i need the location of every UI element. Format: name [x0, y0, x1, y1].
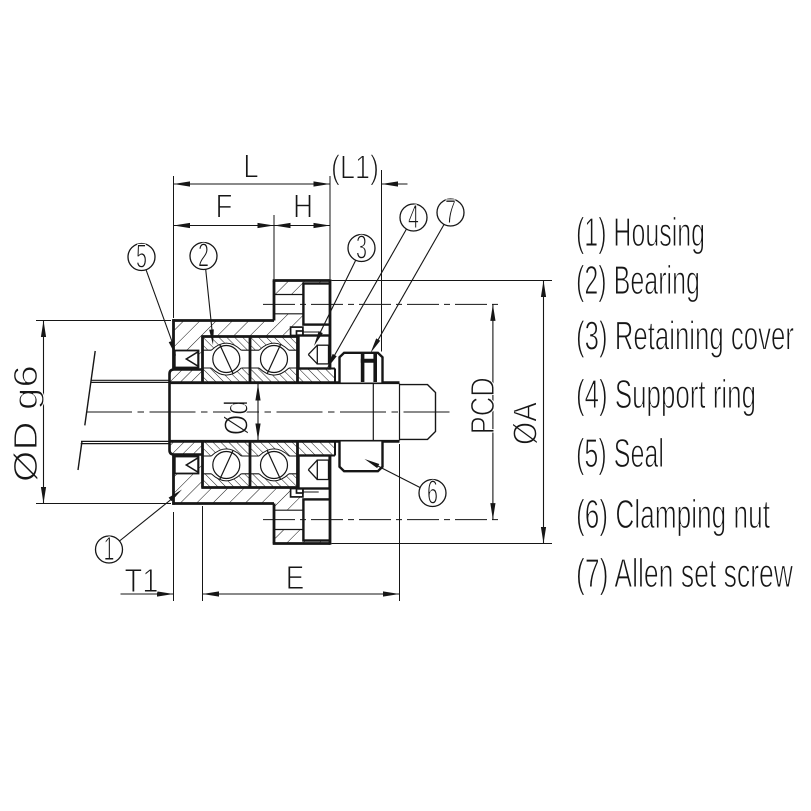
svg-text:2: 2 — [198, 238, 209, 275]
svg-text:5: 5 — [136, 239, 147, 276]
svg-text:H: H — [293, 189, 313, 226]
svg-text:(3) Retaining cover: (3) Retaining cover — [576, 313, 794, 359]
svg-text:(6) Clamping nut: (6) Clamping nut — [576, 491, 770, 537]
svg-text:(4) Support ring: (4) Support ring — [576, 371, 756, 417]
svg-text:F: F — [216, 189, 233, 226]
svg-text:6: 6 — [427, 475, 438, 512]
svg-text:(1) Housing: (1) Housing — [576, 209, 705, 255]
svg-text:(5) Seal: (5) Seal — [576, 430, 664, 476]
svg-text:4: 4 — [408, 199, 419, 236]
svg-text:ØA: ØA — [508, 401, 545, 445]
svg-text:ØD g6: ØD g6 — [8, 365, 45, 482]
svg-text:7: 7 — [445, 194, 456, 231]
svg-text:E: E — [286, 560, 305, 597]
svg-text:L: L — [243, 149, 258, 186]
svg-text:Ød: Ød — [219, 400, 256, 435]
svg-text:(L1): (L1) — [331, 150, 379, 187]
svg-text:1: 1 — [104, 531, 115, 568]
svg-text:T1: T1 — [125, 563, 159, 600]
svg-text:3: 3 — [356, 230, 367, 267]
svg-text:(2) Bearing: (2) Bearing — [576, 257, 700, 303]
svg-text:PCD: PCD — [465, 377, 502, 434]
svg-text:(7) Allen set screw: (7) Allen set screw — [576, 550, 793, 596]
